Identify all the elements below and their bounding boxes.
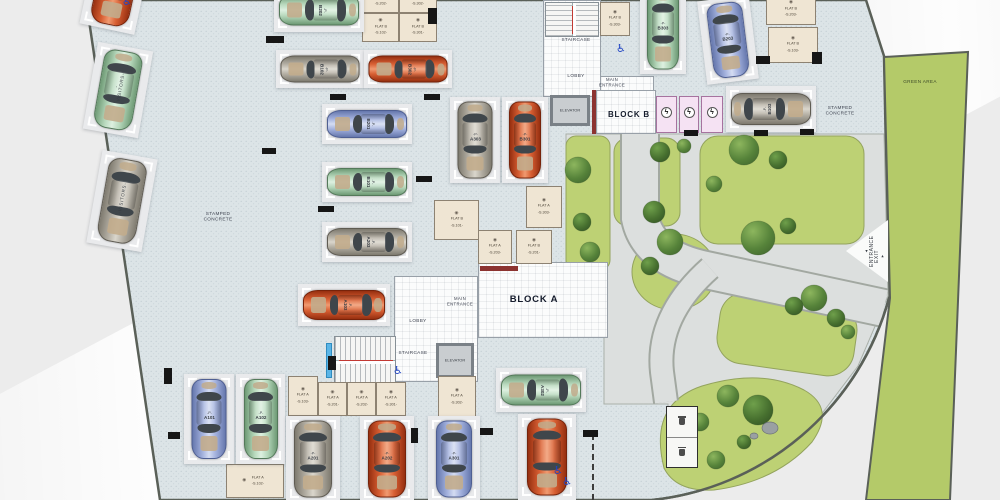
- car-hood: [734, 102, 741, 116]
- site-plan-canvas: ELEVATOR ELEVATOR ▲ ENTRANCE EXIT ▼ BLOC…: [0, 0, 1000, 500]
- door-icon: ◉: [331, 390, 335, 395]
- car-windshield: [385, 232, 394, 252]
- car-hood: [397, 118, 404, 131]
- car-A301: -P-A301: [436, 421, 472, 498]
- car-B103: -P-B103: [731, 93, 811, 125]
- door-icon: ◉: [791, 36, 795, 41]
- car-rear-window: [394, 60, 402, 78]
- car-B302: -P-B302: [369, 56, 448, 83]
- block-a-label: BLOCK A: [498, 294, 570, 305]
- plate-number: B303: [658, 26, 669, 31]
- plate-number: B102: [319, 64, 324, 75]
- storage-room-S102: ◉FLAT A-S.102-: [226, 464, 284, 498]
- car-plate: -P-A101: [204, 412, 215, 420]
- car-rear-window: [300, 464, 326, 472]
- lightning-icon: ϟ: [707, 107, 718, 118]
- storage-flat-label: FLAT B: [528, 245, 540, 249]
- car-hood: [656, 0, 670, 1]
- parking-space-A203: -P-A203: [322, 222, 412, 262]
- plate-number: A101: [204, 415, 215, 420]
- plate-prefix: -P-: [412, 64, 416, 75]
- car-A101: -P-A101: [192, 379, 227, 459]
- parking-space-A201: -P-A201: [286, 416, 340, 500]
- car-trunk: [311, 297, 326, 312]
- car-plate: -P-A203: [366, 237, 374, 248]
- storage-flat-label: FLAT B: [412, 25, 424, 29]
- plate-prefix: -P-: [308, 452, 319, 456]
- car-B303: -P-B303: [647, 0, 679, 70]
- door-icon: ◉: [389, 390, 393, 395]
- wall-segment: [411, 428, 418, 443]
- lobby-b-label: LOBBY: [559, 74, 593, 80]
- parking-space-A302: -P-A302: [496, 368, 586, 412]
- car: [89, 0, 144, 29]
- car-hood: [201, 382, 217, 389]
- elevator-a-label: ELEVATOR: [445, 359, 465, 363]
- storage-room-S303: ◉FLAT A-S.303-: [526, 186, 562, 228]
- lightning-icon: ϟ: [661, 107, 672, 118]
- wheelchair-icon: ♿: [122, 0, 132, 8]
- car-plate: -P-A201: [308, 452, 319, 460]
- car-hood: [467, 105, 483, 112]
- storage-room-S102: ◉FLAT B-S.102-: [362, 13, 399, 42]
- car-plate: -P-B101: [366, 177, 374, 188]
- parking-space-B302: -P-B302: [364, 50, 452, 88]
- door-icon: ◉: [379, 18, 383, 23]
- car-hood: [119, 161, 138, 171]
- plate-prefix: -P-: [323, 5, 327, 16]
- door-icon: ◉: [455, 211, 459, 216]
- car-trunk: [721, 55, 741, 71]
- storage-unit-label: -S.301-: [385, 403, 397, 407]
- lightning-icon: ϟ: [684, 107, 695, 118]
- block-b-wall: [592, 90, 596, 134]
- car-plate: -P-B302: [407, 64, 415, 75]
- door-icon: ◉: [613, 10, 617, 15]
- car-hood: [397, 236, 404, 249]
- parking-space-B101: -P-B101: [322, 162, 412, 202]
- storage-unit-label: -S.101-: [450, 224, 462, 228]
- car-plate: -P-A102: [255, 412, 266, 420]
- stair-path-line: [339, 360, 393, 361]
- car-windshield: [426, 60, 435, 79]
- trash-room-cell: [667, 438, 697, 468]
- storage-unit-label: -S.302-: [412, 2, 424, 6]
- car-trunk: [466, 157, 484, 171]
- staircase-b-label: STAIRCASE: [556, 38, 597, 44]
- storage-unit-label: -S.203-: [785, 13, 797, 17]
- storage-unit-label: -S.303-: [609, 23, 621, 27]
- plate-prefix: -P-: [371, 177, 375, 188]
- main-entrance-a-label: MAIN ENTRANCE: [444, 297, 475, 307]
- car-windshield: [514, 114, 537, 123]
- car-windshield: [441, 433, 467, 442]
- car-plate: -P-B303: [658, 23, 669, 31]
- storage-flat-label: FLAT A: [385, 397, 397, 401]
- storage-flat-label: FLAT B: [785, 7, 797, 11]
- plate-number: A301: [449, 455, 460, 460]
- car-rear-window: [527, 380, 536, 401]
- storage-unit-label: -S.102-: [374, 31, 386, 35]
- wall-segment: [800, 129, 814, 135]
- storage-flat-label: FLAT B: [609, 17, 621, 21]
- wheelchair-icon: ♿: [553, 466, 563, 477]
- parking-space-B203: -P-B203: [697, 0, 759, 85]
- car-windshield: [362, 294, 372, 315]
- block-a-wall: [480, 266, 518, 271]
- car-B202: -P-B202: [279, 0, 359, 26]
- storage-unit-label: -S.301-: [412, 31, 424, 35]
- trash-bin-icon: [679, 449, 685, 456]
- stair-path-line: [572, 6, 573, 34]
- car-rear-window: [442, 464, 467, 472]
- plate-prefix: -P-: [470, 133, 481, 137]
- plate-number: B301: [520, 136, 531, 141]
- door-icon: ◉: [493, 238, 497, 243]
- car-trunk: [303, 476, 322, 490]
- storage-room-S101: ◉FLAT B-S.101-: [434, 200, 479, 240]
- storage-unit-label: -S.102-: [252, 482, 264, 486]
- storage-room-S103: ◉FLAT B-S.103-: [768, 27, 818, 63]
- wheelchair-icon: ♿: [393, 366, 403, 377]
- car-windshield: [462, 114, 487, 123]
- utility-room: ϟ: [679, 96, 699, 133]
- car-A203: -P-A203: [327, 228, 407, 256]
- car-rear-window: [330, 295, 339, 315]
- car-trunk: [200, 436, 218, 451]
- storage-flat-label: FLAT A: [489, 245, 501, 249]
- car-trunk: [335, 117, 350, 131]
- car-A103: -P-A103: [303, 290, 385, 320]
- car-plate: -P-B202: [318, 5, 326, 16]
- car-rear-window: [776, 98, 785, 120]
- car-trunk: [655, 47, 671, 62]
- storage-text: FLAT A-S.102-: [248, 475, 268, 488]
- storage-room-S301: ◉FLAT A-S.301-: [376, 382, 406, 416]
- utility-room: ϟ: [701, 96, 723, 133]
- plate-number: B101: [366, 177, 371, 188]
- elevator-b: ELEVATOR: [550, 95, 590, 126]
- storage-flat-label: FLAT B: [787, 43, 799, 47]
- staircase-a: [334, 336, 396, 383]
- car-windshield: [373, 433, 400, 442]
- plate-prefix: -P-: [371, 237, 375, 248]
- car: [527, 419, 567, 496]
- car-B203: -P-B203: [706, 1, 751, 80]
- wall-segment: [756, 56, 770, 64]
- trash-room-cell: [667, 407, 697, 438]
- parking-space-B303: -P-B303: [640, 0, 686, 74]
- plate-number: B203: [722, 36, 733, 42]
- car-rear-window: [463, 145, 487, 153]
- plate-number: A203: [366, 237, 371, 248]
- storage-flat-label: FLAT A: [326, 397, 338, 401]
- parking-space-B202: -P-B202: [274, 0, 364, 32]
- car-trunk: [106, 217, 128, 236]
- storage-flat-label: FLAT B: [374, 25, 386, 29]
- car-windshield: [559, 379, 568, 401]
- block-b-label: BLOCK B: [598, 110, 660, 120]
- car-hood: [518, 105, 532, 112]
- wall-segment: [168, 432, 180, 439]
- door-icon: ◉: [455, 388, 459, 393]
- plate-number: B201: [366, 119, 371, 130]
- car-windshield: [385, 172, 394, 192]
- wall-segment: [328, 356, 336, 370]
- car-A202: -P-A202: [368, 421, 406, 498]
- car-hood: [378, 424, 395, 431]
- dashed-divider: [592, 434, 594, 500]
- plate-number: B202: [318, 5, 323, 16]
- storage-room-S203: ◉FLAT B-S.203-: [766, 0, 816, 25]
- car-plate: -P-A202: [382, 452, 393, 460]
- plate-number: A201: [308, 455, 319, 460]
- car-roof: [533, 439, 561, 463]
- storage-flat-label: FLAT A: [538, 205, 550, 209]
- car-rear-window: [353, 173, 362, 192]
- parking-space-B301: -P-B301: [502, 97, 548, 183]
- door-icon: ◉: [542, 198, 546, 203]
- car-windshield: [337, 0, 346, 21]
- wall-segment: [480, 428, 493, 435]
- storage-flat-label: FLAT A: [252, 476, 264, 480]
- green-area-label: GREEN AREA: [893, 80, 948, 86]
- car-trunk: [517, 157, 533, 171]
- wall-segment: [754, 130, 768, 136]
- car-B201: -P-B201: [327, 110, 407, 138]
- trash-bin-icon: [679, 418, 685, 425]
- storage-room-S202: ◉FLAT A-S.202-: [347, 382, 376, 416]
- car-B101: -P-B101: [327, 168, 407, 196]
- car: -VISITORS-: [96, 156, 149, 245]
- parking-space: -VISITORS-: [83, 42, 153, 138]
- wall-segment: [262, 148, 276, 154]
- car-hood: [571, 383, 578, 397]
- parking-space: -VISITORS-: [86, 150, 157, 252]
- stamped-concrete-right-label: STAMPED CONCRETE: [813, 106, 866, 117]
- staircase-a-label: STAIRCASE: [392, 351, 434, 357]
- car-hood: [253, 382, 268, 389]
- plate-prefix: -P-: [520, 133, 531, 137]
- car-plate: -P-B201: [366, 119, 374, 130]
- lobby-a-label: LOBBY: [401, 319, 435, 325]
- door-icon: ◉: [301, 387, 305, 392]
- storage-unit-label: -S.201-: [326, 403, 338, 407]
- wall-segment: [684, 130, 698, 136]
- car-trunk: [788, 101, 803, 117]
- storage-room-S103: ◉FLAT A-S.103-: [288, 376, 318, 416]
- car-trunk: [509, 382, 524, 398]
- door-icon: ◉: [242, 478, 246, 483]
- parking-space-A202: -P-A202: [360, 416, 414, 500]
- parking-space-A301: -P-A301: [428, 416, 480, 500]
- storage-unit-label: -S.103-: [297, 400, 309, 404]
- parking-space-B102: -P-B102: [276, 50, 364, 88]
- car-trunk: [287, 2, 302, 18]
- wall-segment: [812, 52, 822, 64]
- car-rear-window: [305, 0, 314, 20]
- parking-space: ♿: [518, 414, 576, 500]
- door-icon: ◉: [789, 0, 793, 5]
- car-trunk: [377, 476, 396, 490]
- storage-flat-label: FLAT A: [355, 397, 367, 401]
- car-rear-window: [652, 35, 674, 43]
- plate-prefix: -P-: [382, 452, 393, 456]
- wheelchair-icon: ♿: [562, 477, 572, 488]
- car-hood: [114, 53, 133, 63]
- ramp-exit-label: EXIT ▼: [874, 234, 885, 278]
- wall-segment: [318, 206, 334, 212]
- plate-number: A302: [540, 385, 545, 396]
- parking-space-A101: -P-A101: [184, 374, 234, 464]
- car-trunk: [335, 235, 350, 249]
- storage-room-S203: ◉FLAT A-S.203-: [478, 230, 512, 264]
- plate-prefix: -P-: [545, 385, 549, 396]
- storage-unit-label: -S.202-: [374, 2, 386, 6]
- storage-unit-label: -S.302-: [451, 401, 463, 405]
- plate-number: B103: [767, 104, 772, 115]
- car-plate: -P-A302: [540, 385, 548, 396]
- door-icon: ◉: [360, 390, 364, 395]
- storage-room-S201: ◉FLAT A-S.201-: [318, 382, 347, 416]
- plate-prefix: -P-: [371, 119, 375, 130]
- door-icon: ◉: [416, 18, 420, 23]
- car-rear-window: [197, 424, 221, 433]
- car-hood: [446, 424, 462, 431]
- car-A302: -P-A302: [501, 375, 581, 406]
- parking-space-B103: -P-B103: [726, 86, 816, 132]
- exit-arrow-icon: ▼: [880, 234, 885, 278]
- trash-room: [666, 406, 698, 468]
- wall-segment: [416, 176, 432, 182]
- parking-space-A102: -P-A102: [236, 374, 285, 464]
- elevator-b-label: ELEVATOR: [560, 109, 580, 113]
- stamped-concrete-left-label: STAMPED CONCRETE: [191, 212, 244, 223]
- plate-number: A102: [255, 415, 266, 420]
- wall-segment: [266, 36, 284, 43]
- car-A102: -P-A102: [244, 379, 278, 459]
- parking-space-B201: -P-B201: [322, 104, 412, 144]
- storage-unit-label: -S.202-: [355, 403, 367, 407]
- car-trunk: [335, 175, 350, 189]
- car-trunk: [100, 0, 123, 18]
- car: -VISITORS-: [92, 48, 144, 133]
- car-hood: [397, 176, 404, 189]
- plate-prefix: -P-: [449, 452, 460, 456]
- car-A303: -P-A303: [458, 102, 493, 179]
- storage-flat-label: FLAT A: [297, 394, 309, 398]
- storage-room-S201: ◉FLAT B-S.201-: [516, 230, 552, 264]
- storage-room-S202: ◉FLAT B-S.202-: [362, 0, 399, 13]
- parking-space-A303: -P-A303: [450, 97, 500, 183]
- car-A201: -P-A201: [294, 421, 332, 498]
- storage-flat-label: FLAT A: [451, 395, 463, 399]
- car-plate: -P-B301: [520, 133, 531, 141]
- car-hood: [349, 63, 356, 75]
- wall-segment: [164, 368, 172, 384]
- car-trunk: [103, 105, 125, 123]
- plate-prefix: -P-: [348, 300, 352, 311]
- wall-segment: [583, 430, 598, 437]
- door-icon: ◉: [532, 238, 536, 243]
- car-hood: [374, 298, 381, 311]
- car-trunk: [445, 476, 463, 490]
- storage-flat-label: FLAT B: [450, 218, 462, 222]
- car-plate: -P-A301: [449, 452, 460, 460]
- storage-unit-label: -S.203-: [489, 251, 501, 255]
- car-rear-window: [374, 464, 400, 472]
- car-plate: -P-B103: [764, 104, 772, 115]
- plate-number: B302: [407, 64, 412, 75]
- car-hood: [538, 422, 556, 429]
- main-entrance-b-label: MAIN ENTRANCE: [596, 78, 627, 88]
- car-hood: [437, 63, 444, 75]
- car-B102: -P-B102: [281, 56, 360, 83]
- wall-segment: [330, 94, 346, 100]
- storage-room-S303: ◉FLAT B-S.303-: [600, 2, 630, 36]
- car-windshield: [533, 431, 562, 440]
- staircase-b: [545, 2, 599, 37]
- car-trunk: [288, 62, 303, 76]
- car-rear-window: [514, 145, 536, 153]
- storage-unit-label: -S.103-: [787, 49, 799, 53]
- car-rear-window: [249, 424, 272, 433]
- wall-segment: [428, 8, 437, 24]
- car-plate: -P-A303: [470, 133, 481, 141]
- plate-number: A103: [343, 300, 348, 311]
- storage-unit-label: -S.303-: [538, 211, 550, 215]
- car-plate: -P-B203: [722, 32, 734, 42]
- car-windshield: [299, 433, 326, 442]
- car-plate: -P-A103: [343, 300, 351, 311]
- plate-number: A303: [470, 136, 481, 141]
- plate-prefix: -P-: [324, 64, 328, 75]
- car-windshield: [338, 60, 347, 79]
- plate-number: A202: [382, 455, 393, 460]
- car-windshield: [385, 114, 394, 134]
- elevator-a: ELEVATOR: [436, 343, 474, 378]
- car-B301: -P-B301: [509, 102, 541, 179]
- parking-space-A103: -P-A103: [298, 284, 390, 326]
- car-rear-window: [353, 115, 362, 134]
- wall-segment: [424, 94, 440, 100]
- car-trunk: [252, 436, 269, 451]
- storage-room-S302: ◉FLAT A-S.302-: [438, 376, 476, 418]
- car-plate: -P-B102: [319, 64, 327, 75]
- wheelchair-icon: ♿: [616, 44, 626, 55]
- car-trunk: [376, 62, 391, 76]
- car-hood: [349, 3, 356, 17]
- parking-space: [79, 0, 152, 35]
- car-rear-window: [353, 233, 362, 252]
- storage-unit-label: -S.201-: [528, 251, 540, 255]
- car-hood: [716, 5, 733, 14]
- car-hood: [304, 424, 321, 431]
- car-rear-window: [306, 60, 314, 78]
